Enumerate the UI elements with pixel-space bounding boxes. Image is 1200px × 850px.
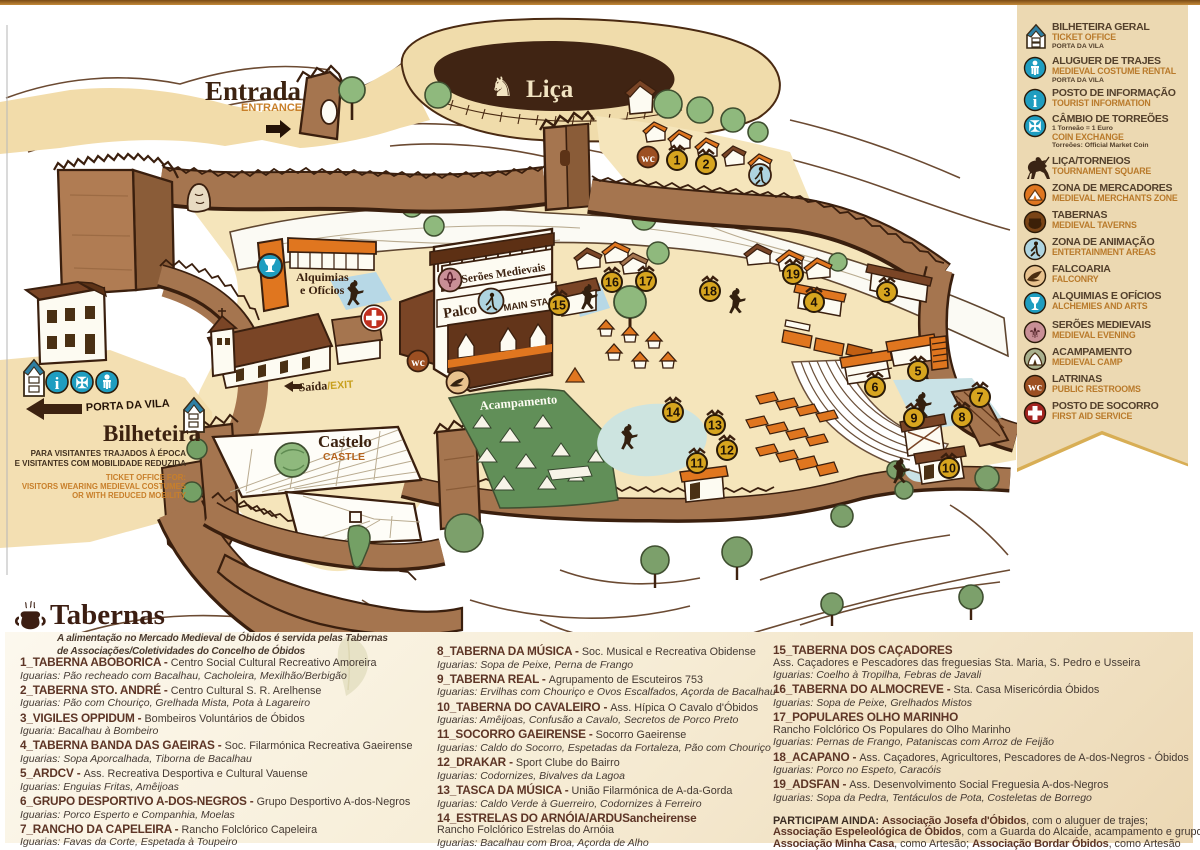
svg-text:✠: ✠ [1029,119,1042,136]
svg-text:CASTLE: CASTLE [323,451,365,463]
svg-text:PARA VISITANTES TRAJADOS À ÉPO: PARA VISITANTES TRAJADOS À ÉPOCA [31,449,187,458]
svg-text:4: 4 [811,296,818,310]
svg-text:ENTRANCE: ENTRANCE [241,102,302,114]
svg-text:VISITORS WEARING MEDIEVAL COST: VISITORS WEARING MEDIEVAL COSTUMES [22,482,186,491]
svg-text:19: 19 [786,268,800,282]
svg-text:16: 16 [605,276,619,290]
svg-text:OR WITH REDUCED MOBILITY: OR WITH REDUCED MOBILITY [72,491,187,500]
svg-text:11: 11 [690,457,703,471]
svg-text:Liça: Liça [526,76,574,103]
svg-text:wc: wc [641,153,654,165]
svg-text:18: 18 [703,285,717,299]
svg-text:14: 14 [666,406,680,420]
svg-text:17: 17 [639,275,653,289]
svg-text:Castelo: Castelo [318,432,372,451]
svg-text:TICKET OFFICE FOR:: TICKET OFFICE FOR: [106,473,186,482]
svg-text:2: 2 [703,158,710,172]
svg-text:i: i [1033,92,1038,111]
svg-text:Tabernas: Tabernas [50,599,165,631]
svg-text:wc: wc [411,357,424,369]
svg-text:Alquimias: Alquimias [296,270,349,284]
svg-text:13: 13 [708,419,722,433]
svg-text:6: 6 [872,381,879,395]
svg-text:8: 8 [959,411,966,425]
svg-text:♞: ♞ [490,72,514,102]
svg-text:3: 3 [884,286,891,300]
svg-text:⚜: ⚜ [1028,325,1041,342]
svg-text:9: 9 [911,412,918,426]
svg-text:e Ofícios: e Ofícios [300,283,345,297]
svg-text:10: 10 [942,462,956,476]
svg-text:wc: wc [1028,380,1043,394]
svg-text:12: 12 [720,444,734,458]
svg-text:E VISITANTES COM MOBILIDADE RE: E VISITANTES COM MOBILIDADE REDUZIDA [15,459,187,468]
svg-text:1: 1 [674,154,681,168]
svg-text:15: 15 [552,299,566,313]
svg-text:i: i [55,374,60,393]
svg-text:✠: ✠ [76,375,89,392]
svg-text:Bilheteira: Bilheteira [103,421,201,446]
svg-text:7: 7 [977,391,984,405]
svg-text:5: 5 [915,365,922,379]
